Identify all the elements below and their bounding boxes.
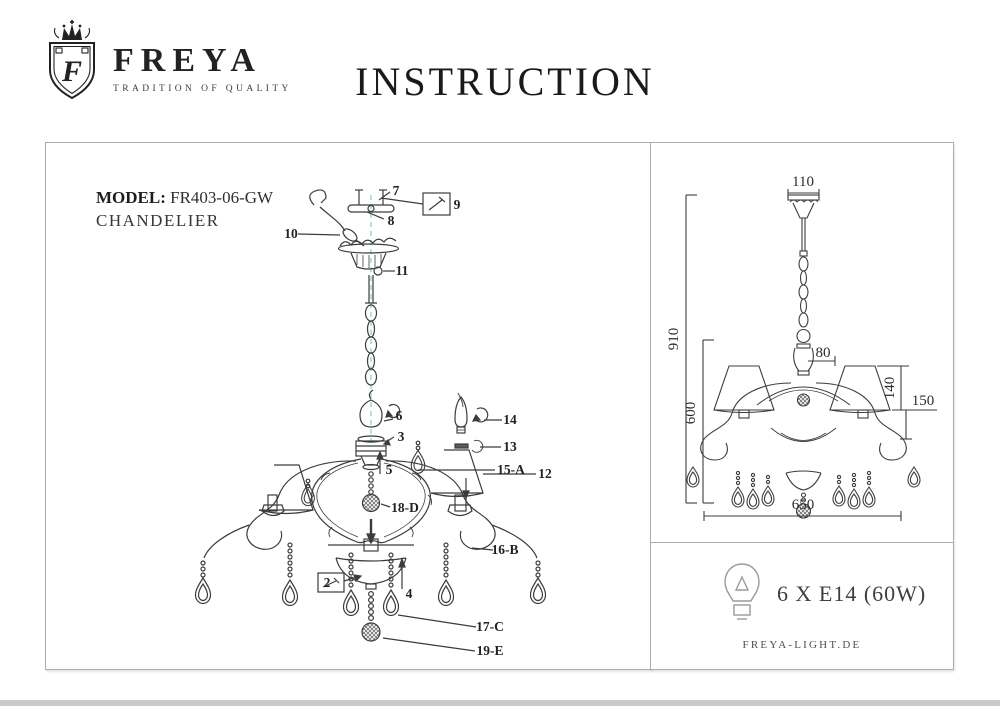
dim-650: 650 xyxy=(792,497,815,513)
website: FREYA-LIGHT.DE xyxy=(651,639,953,651)
callout-4: 4 xyxy=(406,586,413,601)
dim-600: 600 xyxy=(683,402,699,425)
exploded-view-panel: MODEL: FR403-06-GW CHANDELIER xyxy=(45,142,652,670)
dim-80: 80 xyxy=(816,345,831,361)
dimension-diagram: 110 910 600 80 140 150 650 xyxy=(651,143,953,542)
callout-18d: 18-D xyxy=(391,500,419,515)
light-bulb-icon xyxy=(721,561,763,623)
callout-8: 8 xyxy=(388,213,395,228)
product-type: CHANDELIER xyxy=(96,210,273,233)
callout-7: 7 xyxy=(393,183,400,198)
callout-16b: 16-B xyxy=(492,542,519,557)
dimensions-panel: 110 910 600 80 140 150 650 6 X E14 (60W)… xyxy=(650,142,954,670)
callout-3: 3 xyxy=(398,429,405,444)
dim-910: 910 xyxy=(666,328,682,351)
callout-12: 12 xyxy=(538,466,552,481)
callout-19e: 19-E xyxy=(477,643,504,658)
callout-13: 13 xyxy=(503,439,517,454)
callout-14: 14 xyxy=(503,412,517,427)
callout-9: 9 xyxy=(454,197,461,212)
callout-11: 11 xyxy=(396,263,409,278)
callout-6: 6 xyxy=(396,408,403,423)
bulb-spec: 6 X E14 (60W) xyxy=(777,581,926,607)
callout-15a: 15-A xyxy=(497,462,525,477)
callout-17c: 17-C xyxy=(476,619,504,634)
model-block: MODEL: FR403-06-GW CHANDELIER xyxy=(96,187,273,233)
callout-10: 10 xyxy=(284,226,298,241)
dim-140: 140 xyxy=(882,377,898,400)
bulb-info-section: 6 X E14 (60W) FREYA-LIGHT.DE xyxy=(651,542,953,670)
model-value: FR403-06-GW xyxy=(170,188,273,207)
model-label: MODEL: xyxy=(96,188,166,207)
callout-5: 5 xyxy=(386,462,393,477)
page-title: INSTRUCTION xyxy=(10,58,1000,105)
dim-110: 110 xyxy=(792,174,814,190)
callout-2: 2 xyxy=(324,575,331,590)
dim-150: 150 xyxy=(912,393,935,409)
page-edge-shadow xyxy=(0,700,1000,706)
